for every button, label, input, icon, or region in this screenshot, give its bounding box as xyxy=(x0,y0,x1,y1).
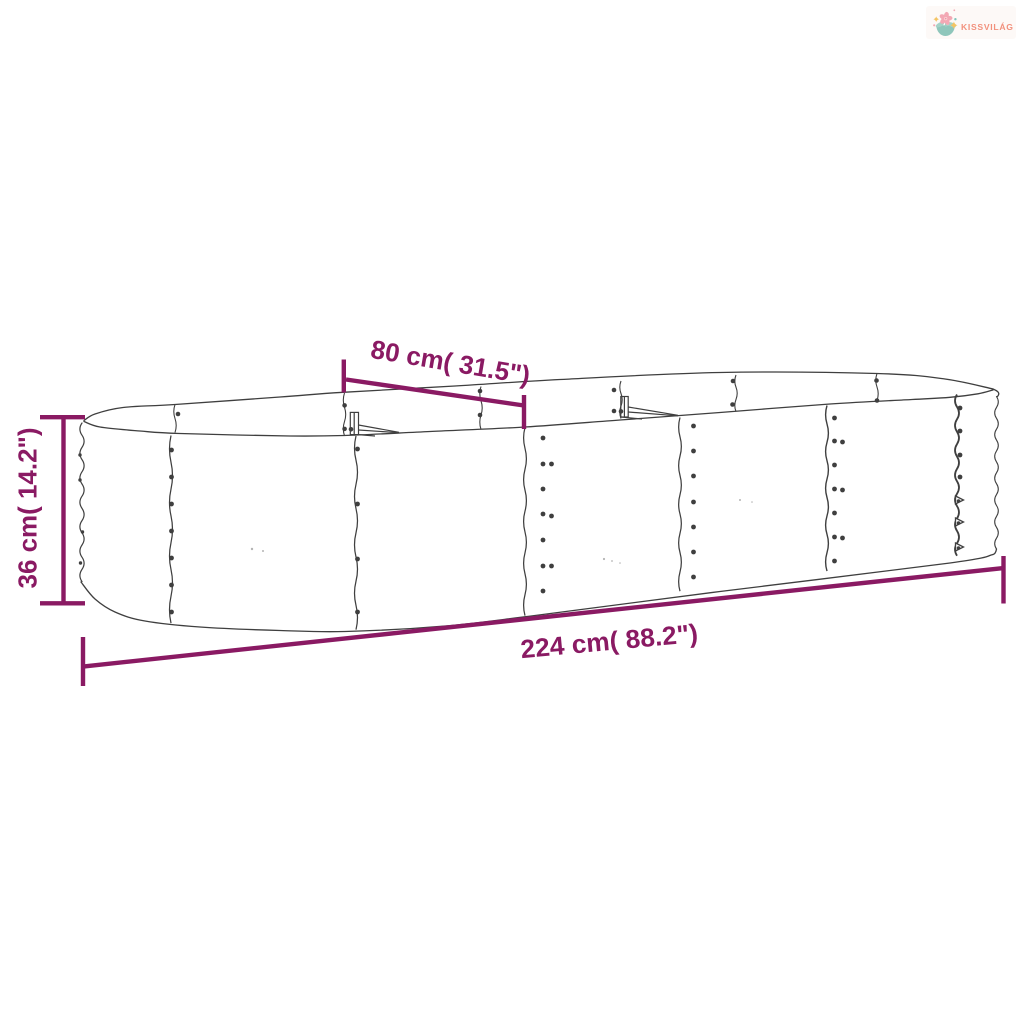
svg-text:KISSVILÁG: KISSVILÁG xyxy=(961,22,1014,32)
svg-text:224 cm( 88.2"): 224 cm( 88.2") xyxy=(519,618,699,664)
svg-text:80 cm( 31.5"): 80 cm( 31.5") xyxy=(369,334,533,390)
svg-text:36 cm( 14.2"): 36 cm( 14.2") xyxy=(13,428,43,589)
